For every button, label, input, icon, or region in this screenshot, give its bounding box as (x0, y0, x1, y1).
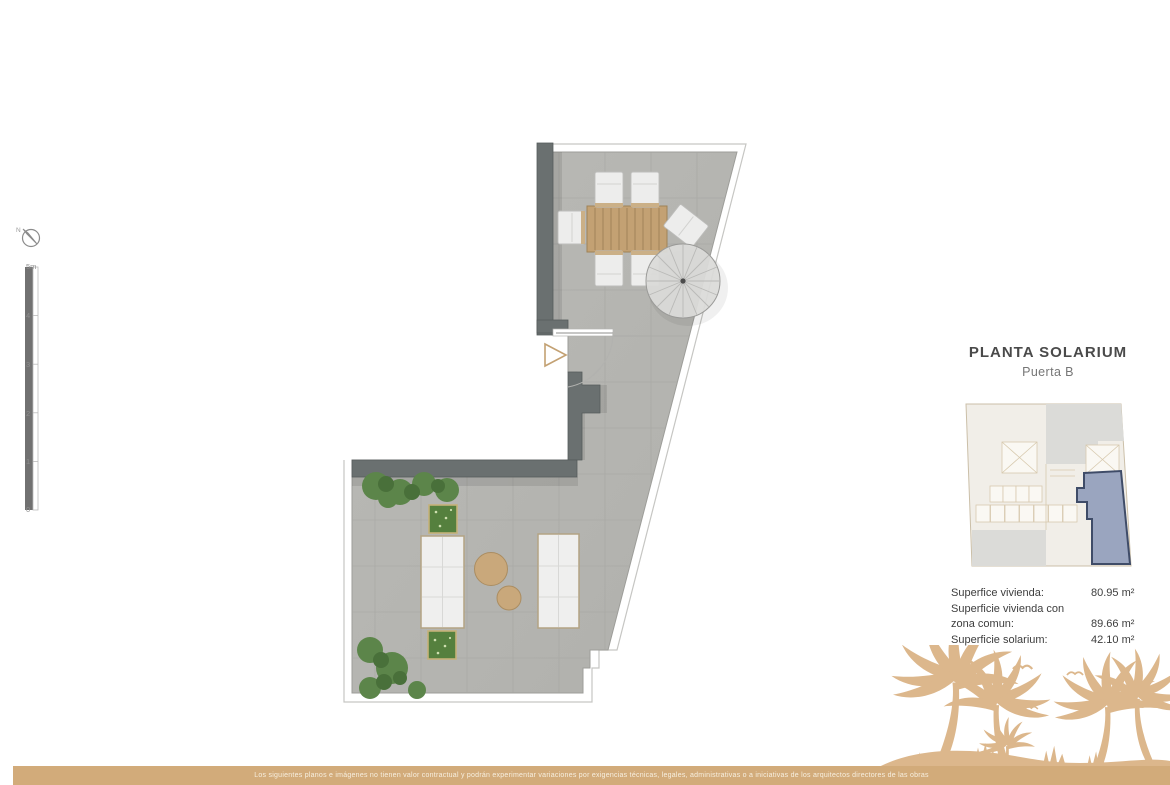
entrance-arrow-icon (545, 344, 566, 366)
palm-silhouette (855, 645, 1170, 785)
area-label: Superficie vivienda con zona comun: (951, 602, 1091, 633)
area-row-vivienda-zona-comun: Superficie vivienda con zona comun: 89.6… (951, 602, 1147, 633)
disclaimer-banner: Los siguientes planos e imágenes no tien… (13, 766, 1170, 785)
wall-upper-left (537, 143, 553, 335)
scale-tick-1: 1 (26, 457, 30, 466)
area-value: 80.95 m² (1091, 586, 1147, 602)
title-block: PLANTA SOLARIUM Puerta B (948, 344, 1148, 379)
area-row-vivienda: Superfice vivienda: 80.95 m² (951, 586, 1147, 602)
north-label: N (16, 227, 21, 234)
surface-areas: Superfice vivienda: 80.95 m² Superficie … (951, 586, 1147, 648)
scale-bar (25, 267, 38, 510)
keyplan-gray-block-bottom (972, 530, 1046, 566)
disclaimer-text: Los siguientes planos e imágenes no tien… (254, 772, 928, 779)
area-value: 89.66 m² (1091, 617, 1147, 633)
solarium-floor-plan (330, 125, 760, 710)
scale-tick-0: 0 (26, 505, 30, 514)
wall-lower-terrace (352, 460, 577, 477)
palm-trees-illustration (855, 645, 1170, 785)
scale-tick-3: 3 (26, 360, 30, 369)
scale-tick-2: 2 (26, 409, 30, 418)
key-plan (955, 395, 1140, 575)
page-subtitle: Puerta B (948, 365, 1148, 379)
scale-tick-5m: 5m (26, 262, 36, 271)
scale-tick-4: 4 (26, 311, 30, 320)
area-label: Superfice vivienda: (951, 586, 1091, 602)
brochure-page: N 5m 4 3 2 1 0 (0, 0, 1170, 785)
page-title: PLANTA SOLARIUM (948, 344, 1148, 361)
north-compass-icon (23, 229, 40, 247)
scale-and-compass: N (14, 220, 74, 530)
